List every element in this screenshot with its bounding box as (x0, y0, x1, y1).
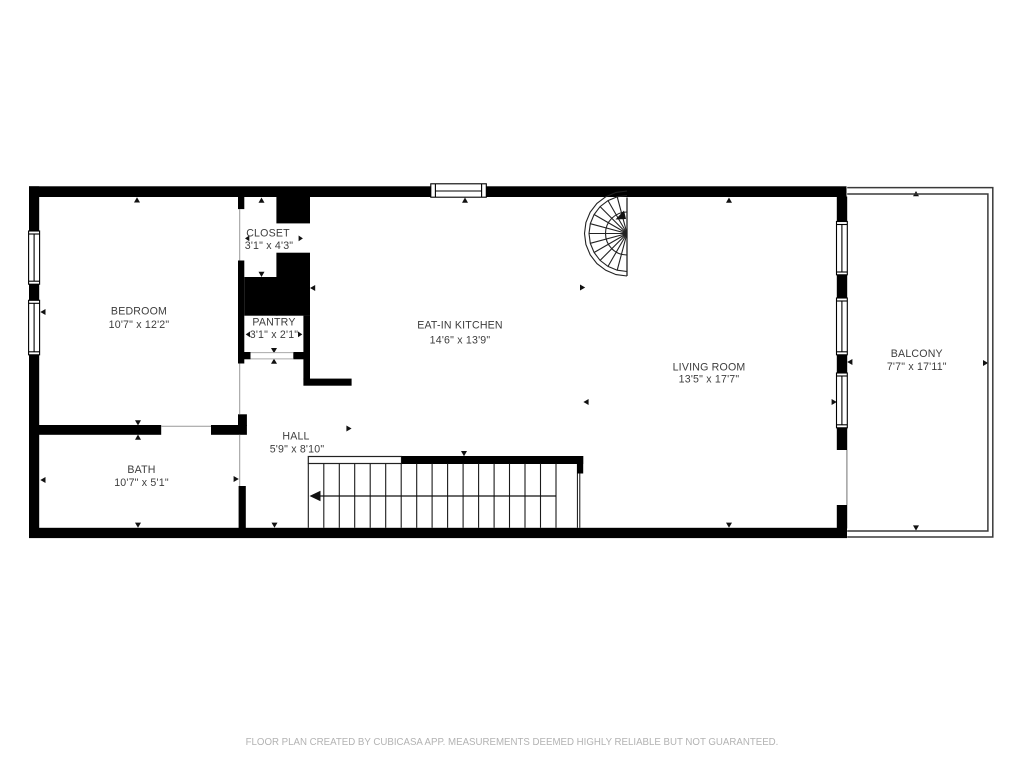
svg-text:13'5" x 17'7": 13'5" x 17'7" (679, 373, 740, 385)
svg-text:10'7" x 5'1": 10'7" x 5'1" (114, 477, 169, 489)
svg-text:3'1" x 4'3": 3'1" x 4'3" (245, 240, 294, 252)
svg-text:FLOOR PLAN CREATED BY CUBICASA: FLOOR PLAN CREATED BY CUBICASA APP. MEAS… (246, 737, 779, 748)
svg-text:HALL: HALL (282, 431, 309, 443)
svg-text:EAT-IN KITCHEN: EAT-IN KITCHEN (417, 320, 503, 332)
svg-text:14'6" x 13'9": 14'6" x 13'9" (430, 334, 491, 346)
svg-text:BALCONY: BALCONY (891, 348, 943, 360)
svg-text:PANTRY: PANTRY (252, 317, 295, 329)
svg-text:3'1" x 2'1": 3'1" x 2'1" (250, 329, 299, 341)
svg-text:LIVING ROOM: LIVING ROOM (673, 362, 746, 374)
svg-text:BATH: BATH (127, 464, 155, 476)
svg-text:7'7" x 17'11": 7'7" x 17'11" (887, 361, 947, 373)
svg-text:5'9" x 8'10": 5'9" x 8'10" (270, 443, 325, 455)
svg-text:10'7" x 12'2": 10'7" x 12'2" (109, 319, 170, 331)
svg-text:BEDROOM: BEDROOM (111, 306, 167, 318)
svg-text:CLOSET: CLOSET (246, 228, 290, 240)
